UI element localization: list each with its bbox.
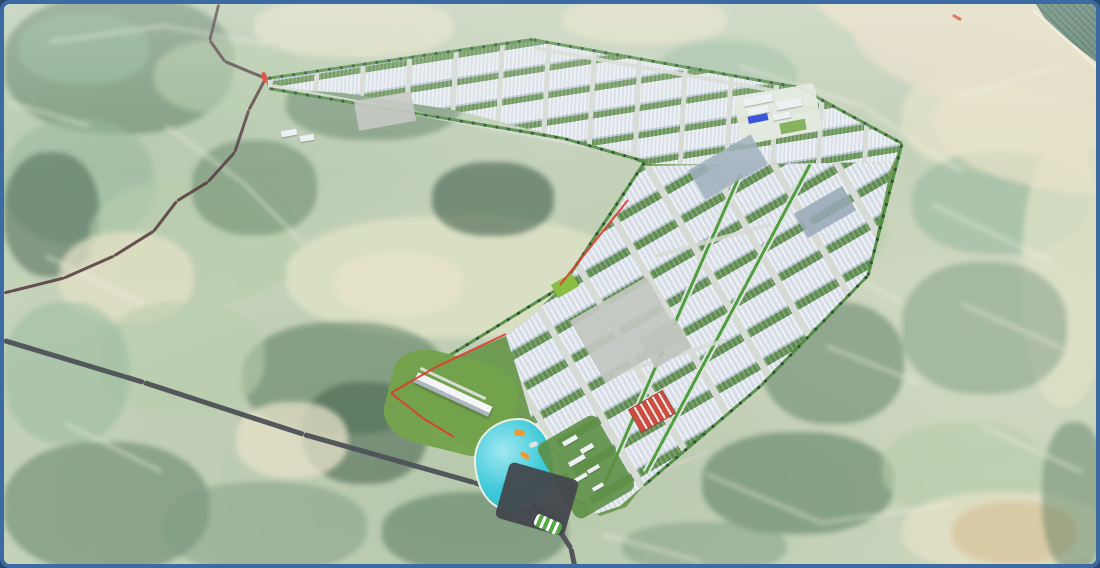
red-boundary-lines: [4, 4, 1096, 564]
aerial-masterplan-image: [0, 0, 1100, 568]
boundary-line: [390, 392, 424, 420]
boundary-line: [391, 366, 437, 394]
boundary-line: [423, 418, 454, 438]
boundary-line: [436, 333, 507, 368]
boundary-line: [559, 199, 629, 285]
industrial-park: [4, 4, 1096, 564]
